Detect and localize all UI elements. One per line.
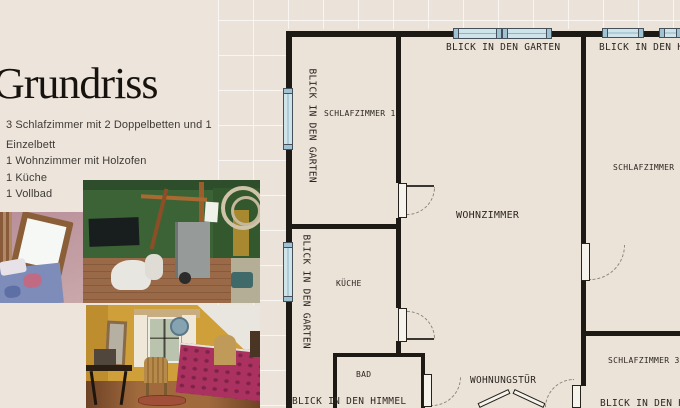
view-label-garten-top: BLICK IN DEN GARTEN — [446, 42, 560, 53]
window-wohnzimmer-right — [502, 28, 552, 39]
window-schlafzimmer2-left — [602, 28, 644, 38]
page-title: Grundriss — [0, 58, 158, 109]
wall — [396, 218, 401, 308]
armchair-back — [145, 254, 163, 280]
feature-line: 1 Küche — [6, 172, 47, 184]
window-schlafzimmer2-right — [659, 28, 680, 38]
feature-line: Einzelbett — [6, 139, 55, 151]
door-bad — [423, 374, 432, 407]
wall — [581, 331, 680, 336]
view-label-himmel-topright: BLICK IN DEN HIMMEL — [599, 42, 680, 53]
wood-beam — [141, 194, 207, 201]
view-label-himmel-bottomright: BLICK IN DEN HIMMEL — [600, 398, 680, 408]
room-label-wohnzimmer: WOHNZIMMER — [456, 210, 519, 221]
room-label-kueche: KÜCHE — [336, 279, 362, 288]
window-wohnzimmer-left — [453, 28, 502, 39]
wall-bad-top — [333, 353, 425, 357]
wheel — [179, 272, 191, 284]
room-label-schlafzimmer2: SCHLAFZIMMER 2 — [613, 163, 680, 172]
wicker-armchair — [214, 335, 236, 365]
blanket-pattern — [4, 285, 21, 299]
room-label-wohnungstuer: WOHNUNGSTÜR — [470, 375, 536, 386]
wall-plate — [170, 317, 189, 336]
feature-line: 3 Schlafzimmer mit 2 Doppelbetten und 1 — [6, 119, 212, 131]
feature-line: 1 Vollbad — [6, 188, 52, 200]
view-label-garten-schlafzimmer1: BLICK IN DEN GARTEN — [305, 69, 318, 179]
coil-inner — [231, 196, 260, 226]
window-schlafzimmer1 — [283, 88, 293, 150]
wall — [396, 37, 401, 183]
hanging-towel — [204, 202, 218, 223]
photo-yellow-bedroom — [86, 305, 260, 408]
wall — [581, 280, 586, 334]
photo-green-living-room — [83, 180, 260, 303]
wall — [292, 224, 396, 229]
sewing-machine — [94, 349, 116, 365]
room-label-schlafzimmer3: SCHLAFZIMMER 3 — [608, 356, 680, 365]
feature-line: 1 Wohnzimmer mit Holzofen — [6, 155, 146, 167]
room-label-schlafzimmer1: SCHLAFZIMMER 1 — [324, 109, 396, 118]
floorplan-slide: Grundriss 3 Schlafzimmer mit 2 Doppelbet… — [0, 0, 680, 408]
window-kueche — [283, 242, 293, 302]
headboard — [250, 331, 260, 357]
wall — [581, 336, 586, 386]
wicker-chair-back — [144, 357, 168, 383]
door-schlafzimmer2 — [581, 243, 590, 281]
door-kueche — [398, 308, 407, 342]
view-label-himmel-bottomleft: BLICK IN DEN HIMMEL — [292, 396, 406, 407]
blanket-pattern — [23, 273, 42, 289]
coiled-hose — [221, 186, 260, 230]
teal-cushion — [231, 272, 253, 288]
door-schlafzimmer1 — [398, 183, 407, 218]
tv — [89, 217, 140, 247]
machine — [175, 222, 210, 278]
wall — [581, 37, 586, 243]
room-label-bad: BAD — [356, 370, 371, 379]
photo-attic-bedroom — [0, 212, 83, 303]
rug — [138, 395, 186, 406]
view-label-garten-kueche: BLICK IN DEN GARTEN — [299, 235, 312, 343]
